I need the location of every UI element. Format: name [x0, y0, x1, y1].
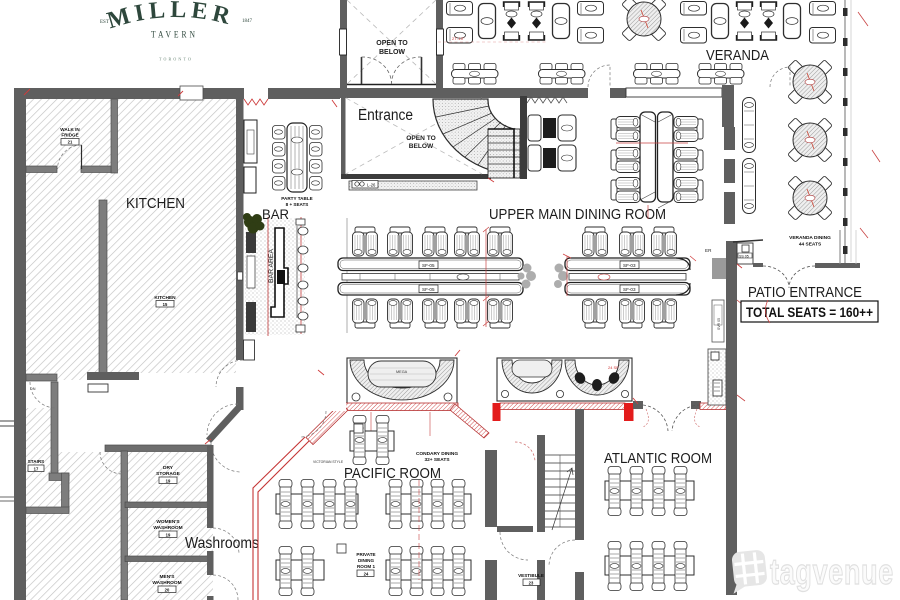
svg-text:Washrooms: Washrooms [185, 535, 259, 552]
svg-text:BAR AREA: BAR AREA [268, 248, 275, 283]
svg-text:ROOM 1: ROOM 1 [357, 564, 376, 569]
svg-text:17: 17 [34, 466, 39, 471]
svg-text:ER: ER [705, 248, 712, 253]
svg-text:24: 24 [364, 572, 369, 577]
svg-text:VESTIBULE: VESTIBULE [518, 573, 544, 578]
svg-text:SF-05: SF-05 [422, 263, 435, 268]
svg-text:MEGA: MEGA [396, 370, 408, 374]
svg-text:PRIVATE: PRIVATE [356, 552, 375, 557]
svg-text:BAR: BAR [262, 207, 289, 222]
svg-text:32+ SEATS: 32+ SEATS [424, 457, 450, 463]
svg-text:TORONTO: TORONTO [159, 57, 193, 62]
svg-text:BELOW: BELOW [409, 143, 434, 150]
svg-text:L-26: L-26 [367, 183, 376, 188]
svg-text:MEN'S: MEN'S [160, 574, 176, 580]
svg-text:15: 15 [163, 302, 168, 307]
svg-text:CONDARY DINING: CONDARY DINING [416, 451, 458, 457]
svg-text:SS 05: SS 05 [739, 255, 749, 259]
svg-text:STORAGE: STORAGE [156, 471, 180, 477]
svg-text:PARTY TABLE: PARTY TABLE [281, 196, 312, 201]
svg-text:23: 23 [529, 581, 534, 586]
svg-text:8 + SEATS: 8 + SEATS [286, 202, 309, 207]
svg-text:27'-10": 27'-10" [452, 36, 465, 41]
svg-text:KITCHEN: KITCHEN [154, 295, 176, 301]
svg-text:44 SEATS: 44 SEATS [799, 242, 822, 248]
svg-text:OPEN TO: OPEN TO [376, 40, 408, 47]
svg-text:EST: EST [100, 20, 109, 25]
svg-text:Entrance: Entrance [358, 107, 413, 124]
svg-text:SF-03: SF-03 [623, 287, 636, 292]
svg-text:WASHROOM: WASHROOM [153, 525, 182, 531]
svg-text:OPEN TO: OPEN TO [406, 135, 436, 142]
svg-text:DRY: DRY [163, 465, 174, 471]
svg-text:VERANDA: VERANDA [706, 47, 769, 64]
svg-text:VICTORIAN STYLE: VICTORIAN STYLE [313, 460, 344, 464]
svg-text:19: 19 [166, 532, 171, 537]
svg-text:19: 19 [166, 478, 171, 483]
svg-text:SF-05: SF-05 [422, 287, 435, 292]
svg-text:STAIRS: STAIRS [28, 459, 45, 464]
svg-text:1847: 1847 [242, 19, 253, 24]
svg-text:tagvenue: tagvenue [770, 551, 894, 592]
svg-text:KITCHEN: KITCHEN [126, 196, 185, 212]
svg-text:FRIDGE: FRIDGE [61, 133, 78, 138]
svg-text:WALK IN: WALK IN [60, 127, 80, 132]
svg-text:UPPER MAIN DINING ROOM: UPPER MAIN DINING ROOM [489, 207, 666, 223]
svg-text:21: 21 [68, 140, 73, 145]
svg-text:WASHROOM: WASHROOM [152, 580, 181, 586]
svg-text:PATIO ENTRANCE: PATIO ENTRANCE [748, 284, 862, 301]
svg-text:TAVERN: TAVERN [151, 30, 198, 40]
svg-text:SVR 05: SVR 05 [717, 318, 721, 330]
svg-text:VERANDA DINING: VERANDA DINING [789, 235, 831, 241]
svg-text:24 SF: 24 SF [608, 365, 619, 370]
svg-text:DINING: DINING [358, 558, 375, 563]
svg-text:BELOW: BELOW [379, 49, 405, 56]
svg-text:TOTAL SEATS = 160++: TOTAL SEATS = 160++ [746, 304, 873, 320]
svg-text:WOMEN'S: WOMEN'S [156, 519, 180, 525]
svg-text:SF-03: SF-03 [623, 263, 636, 268]
svg-text:20: 20 [165, 587, 170, 592]
svg-text:ATLANTIC ROOM: ATLANTIC ROOM [604, 450, 712, 467]
